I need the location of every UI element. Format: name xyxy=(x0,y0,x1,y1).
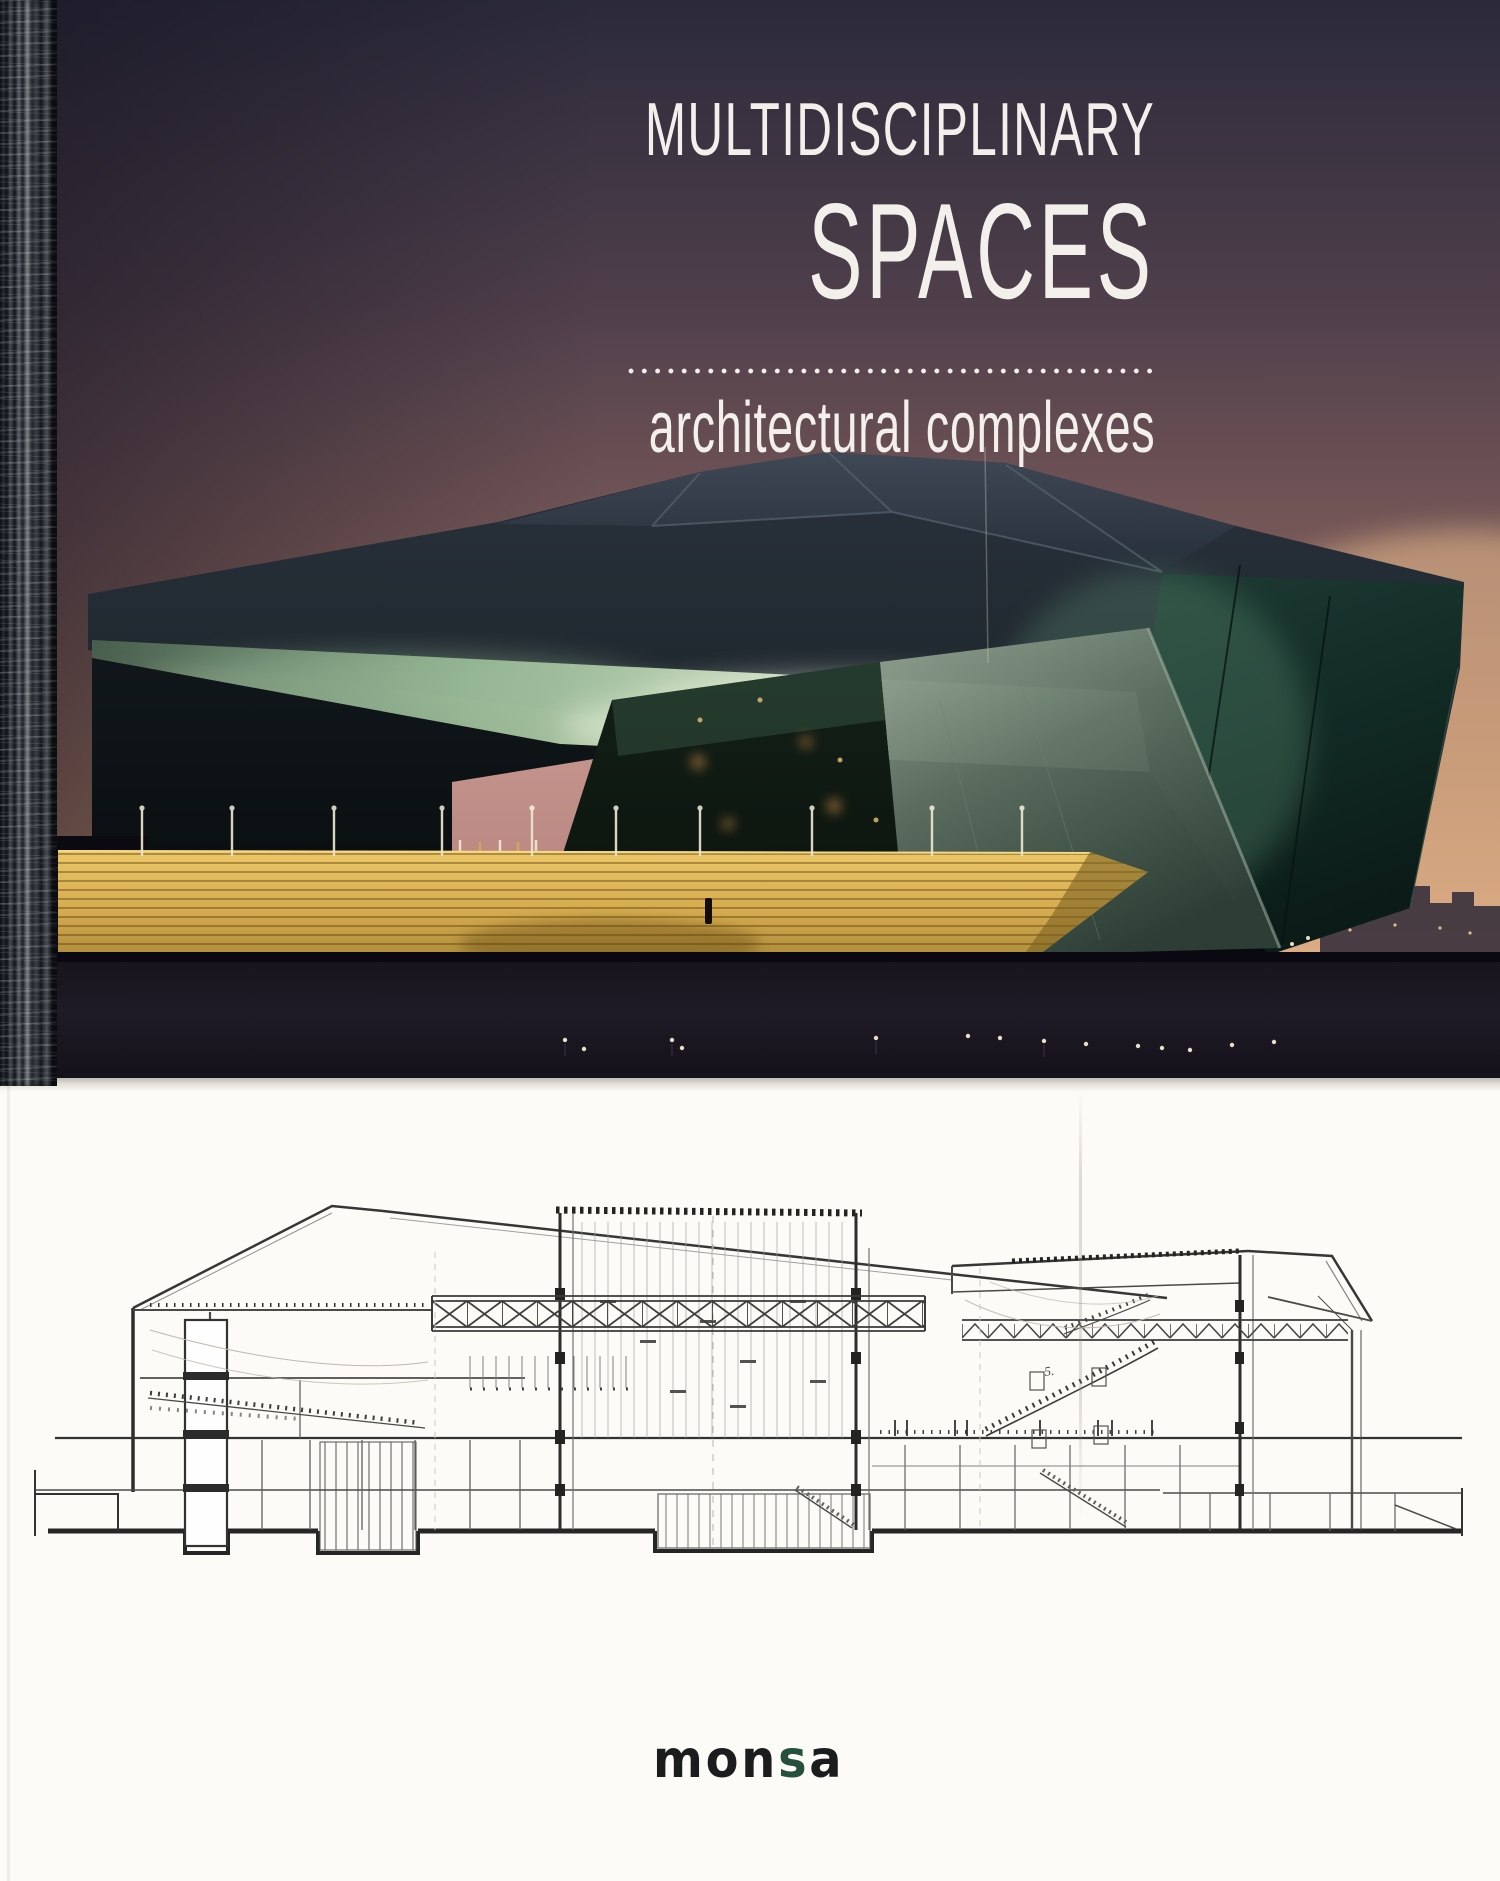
publisher-logo-accent: s xyxy=(778,1730,809,1790)
photo-edge xyxy=(0,1078,1500,1092)
title-line1: MULTIDISCIPLINARY xyxy=(645,92,1155,167)
publisher-logo: monsa xyxy=(653,1734,844,1786)
dotted-divider xyxy=(628,368,1155,374)
page-edge-shadow xyxy=(7,1086,10,1881)
plaza-foreground xyxy=(56,936,1500,1086)
subtitle: architectural complexes xyxy=(648,392,1155,464)
title-line2: SPACES xyxy=(808,183,1155,319)
book-spine xyxy=(0,0,57,1086)
book-cover: MULTIDISCIPLINARY SPACES architectural c… xyxy=(0,0,1500,1881)
publisher-logo-part2: a xyxy=(809,1730,844,1790)
ground-line xyxy=(35,1442,1462,1553)
page-crease xyxy=(1079,1090,1082,1520)
person-silhouette xyxy=(705,898,712,924)
drawing-annotation: 5. xyxy=(1043,1363,1055,1379)
publisher-logo-part1: mon xyxy=(653,1730,778,1790)
x-braced-truss xyxy=(432,1296,925,1331)
